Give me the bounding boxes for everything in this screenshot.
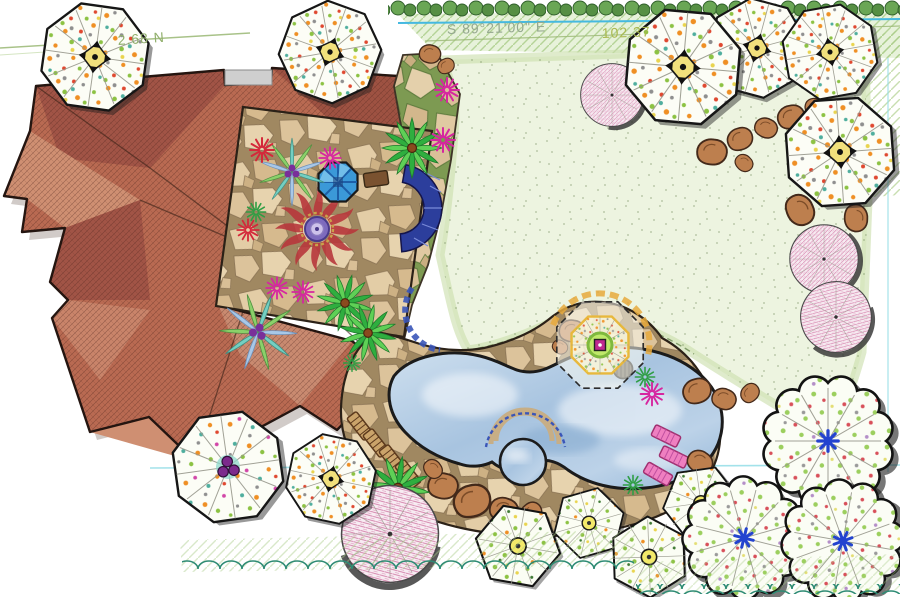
pool-spa	[500, 439, 546, 485]
survey-north-distance-label: 2.68 N	[117, 29, 165, 48]
spa-octagon	[319, 163, 358, 202]
survey-distance-label: 102.37	[602, 23, 651, 41]
patio-bench	[363, 170, 389, 187]
survey-bearing-label: S 89°21'00" E	[447, 18, 547, 37]
landscape-plan-drawing: 2.68 N S 89°21'00" E 102.37	[0, 0, 900, 597]
entry-stoop	[225, 70, 272, 85]
site-plan-canvas: 2.68 N S 89°21'00" E 102.37	[0, 0, 900, 597]
